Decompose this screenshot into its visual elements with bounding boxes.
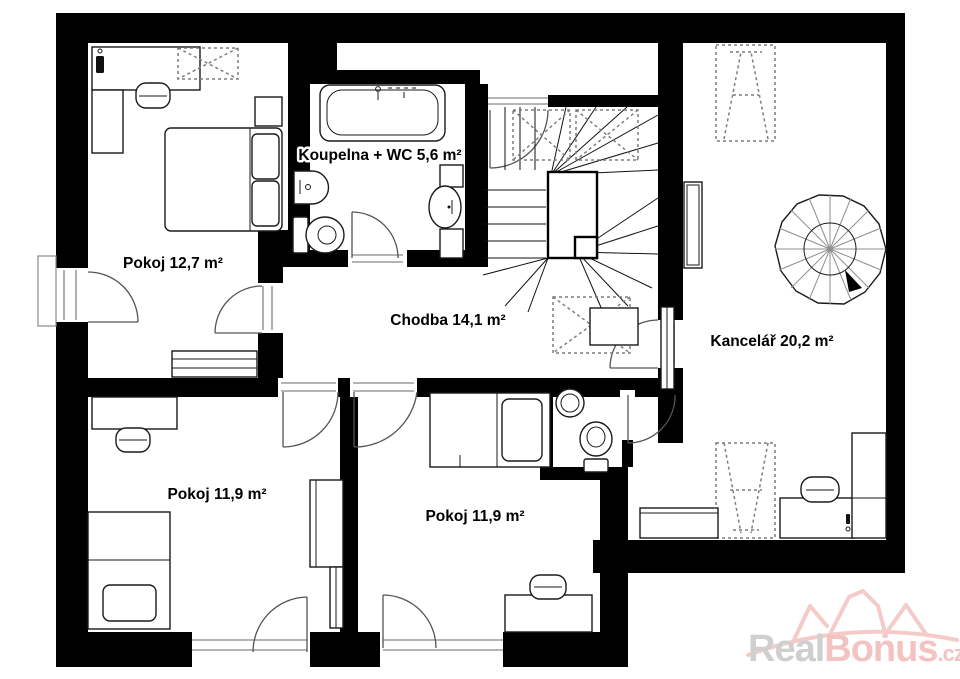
watermark-text: RealBonus.cz xyxy=(748,628,960,670)
computer-icon xyxy=(96,56,104,73)
bidet-symbol xyxy=(294,171,329,204)
chair-symbol xyxy=(530,575,566,599)
threshold-bedroom3-top-door xyxy=(350,378,417,397)
label-bathroom: Koupelna + WC 5,6 m² xyxy=(298,147,461,164)
bookshelf-symbol xyxy=(684,182,702,268)
door-bedroom1 xyxy=(215,286,262,333)
label-bedroom1: Pokoj 12,7 m² xyxy=(123,255,223,272)
label-bedroom2: Pokoj 11,9 m² xyxy=(167,486,266,503)
spiral-staircase-symbol xyxy=(775,194,886,304)
bath-cabinet-symbol xyxy=(440,229,463,258)
toilet-symbol xyxy=(293,217,344,253)
single-bed-symbol xyxy=(88,512,170,629)
bedroom1-furniture xyxy=(92,47,282,377)
radiator-symbol xyxy=(172,351,257,377)
chair-symbol xyxy=(801,477,839,502)
wc-fixtures xyxy=(556,389,612,472)
window-bedroom2-bottom xyxy=(192,632,310,667)
toilet-symbol xyxy=(580,422,612,472)
desk-symbol xyxy=(505,595,592,632)
radiator-symbol xyxy=(661,307,674,389)
staircase xyxy=(483,107,658,312)
sink-symbol xyxy=(556,389,584,417)
chair-symbol xyxy=(116,428,150,452)
wardrobe-symbol xyxy=(310,480,343,567)
bedroom2-furniture xyxy=(88,397,343,629)
washer-symbol xyxy=(440,165,463,187)
sink-symbol xyxy=(429,186,461,228)
hall-cabinet-symbol xyxy=(590,308,638,345)
bathtub-symbol xyxy=(320,85,445,141)
bathroom-fixtures xyxy=(293,85,463,258)
balcony-door-bedroom1 xyxy=(88,272,138,322)
tall-cabinet-symbol xyxy=(852,433,886,538)
balcony-door-threshold-bedroom1 xyxy=(56,268,88,322)
window-bedroom3-bottom xyxy=(380,632,503,667)
radiator-symbol xyxy=(330,567,343,628)
door-bedroom2-top xyxy=(283,392,338,447)
floor-plan-page: Pokoj 12,7 m² Koupelna + WC 5,6 m² Chodb… xyxy=(0,0,960,679)
label-bedroom3: Pokoj 11,9 m² xyxy=(425,508,524,525)
label-office: Kancelář 20,2 m² xyxy=(710,333,833,350)
balcony-slab-bedroom1 xyxy=(38,256,56,326)
hallway-furniture xyxy=(553,297,638,353)
void-outline-dashed xyxy=(513,110,638,160)
double-bed-symbol xyxy=(165,128,282,231)
floor-plan-drawing: Pokoj 12,7 m² Koupelna + WC 5,6 m² Chodb… xyxy=(0,0,960,679)
wardrobe-dashed-top xyxy=(716,45,775,141)
wardrobe-dashed-bottom xyxy=(716,443,775,538)
label-hallway: Chodba 14,1 m² xyxy=(390,312,505,329)
low-cabinet-symbol xyxy=(640,508,718,538)
office-desk-symbol xyxy=(780,498,854,538)
nightstand-symbol xyxy=(255,97,282,126)
desk-symbol xyxy=(92,397,177,429)
watermark: RealBonus.cz xyxy=(748,591,960,670)
threshold-bedroom2-top-door xyxy=(278,378,338,397)
window-stair-top xyxy=(488,95,548,107)
chair-symbol xyxy=(136,83,170,108)
single-bed-symbol xyxy=(430,393,550,467)
door-bedroom3-top xyxy=(354,392,417,447)
threshold-bedroom1-door xyxy=(258,283,283,333)
